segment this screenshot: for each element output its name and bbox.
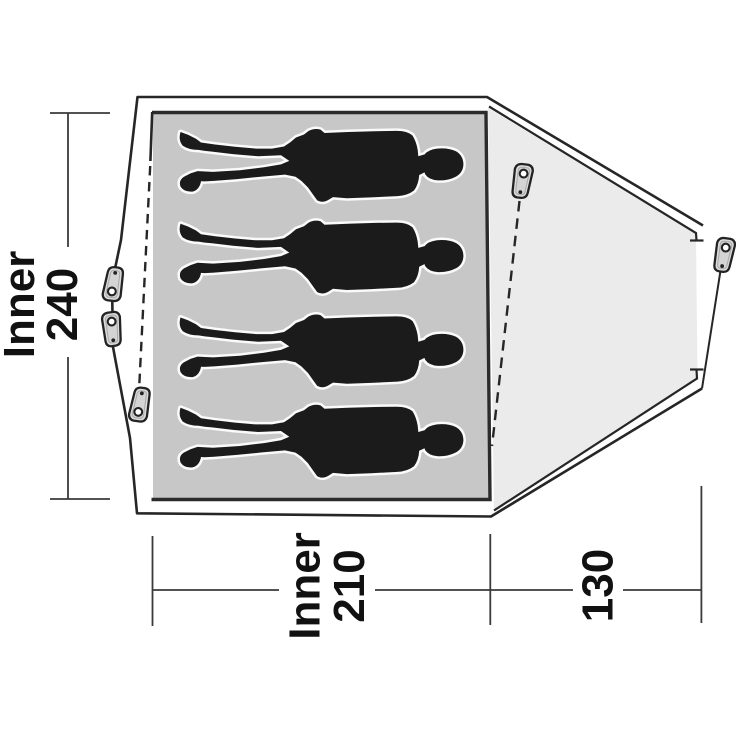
svg-text:240: 240 [38, 268, 87, 341]
svg-text:210: 210 [325, 549, 374, 622]
svg-text:130: 130 [574, 549, 623, 622]
svg-text:Inner: Inner [281, 532, 330, 640]
